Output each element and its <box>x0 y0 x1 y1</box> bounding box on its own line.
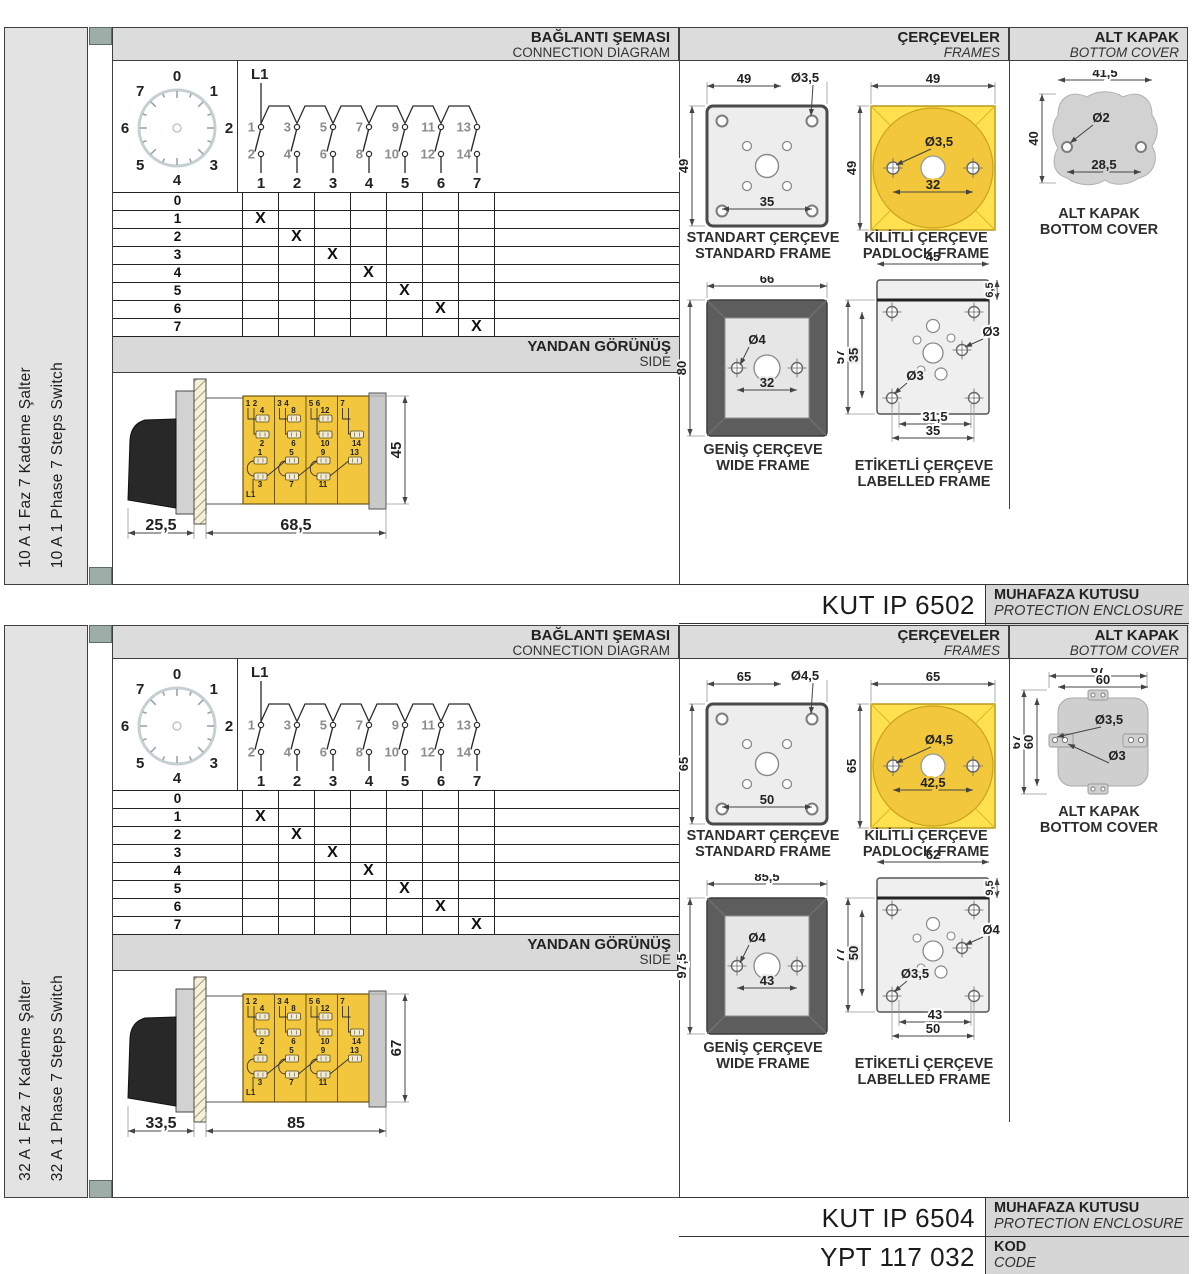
terminal-number: 10 <box>321 439 330 448</box>
dim-arrow <box>857 223 862 230</box>
terminal-number: 6 <box>291 1037 296 1046</box>
terminal-number: 12 <box>321 1004 330 1013</box>
contact-cell <box>459 791 495 809</box>
dim-text: 80 <box>677 361 689 375</box>
dim-arrow <box>899 1019 906 1024</box>
table-row: 0 <box>113 791 679 809</box>
terminal-number: 9 <box>321 448 326 457</box>
contact-cell <box>459 863 495 881</box>
contact-mark: X <box>243 809 279 827</box>
contact-mark: X <box>459 917 495 935</box>
padlock-frame-caption: KİLİTLİ ÇERÇEVE PADLOCK FRAME <box>843 230 1009 262</box>
side-view-header: YANDAN GÖRÜNÜŞ SIDE <box>113 337 679 373</box>
contact-cell <box>243 917 279 935</box>
table-row: 0 <box>113 193 679 211</box>
switch-blade <box>435 728 441 750</box>
frames-header-tr: ÇERÇEVELER <box>679 628 1000 644</box>
contact-cell <box>459 283 495 301</box>
contact-cell <box>423 211 459 229</box>
table-row: 7X <box>113 319 679 337</box>
table-row: 4X <box>113 265 679 283</box>
dim-arrow <box>877 261 884 266</box>
labelled-frame-drawing: 456,5Ø3Ø3573531,535 <box>837 252 1009 457</box>
frames-header-en: FRAMES <box>679 644 1000 658</box>
switch-handle <box>128 419 176 508</box>
labelled-frame-caption-en: LABELLED FRAME <box>839 474 1009 490</box>
bottom-cover-header-en: BOTTOM COVER <box>1009 644 1179 658</box>
contact-cell <box>387 827 423 845</box>
hole-callout: Ø3,5 <box>901 966 929 981</box>
terminal-number: 7 <box>340 399 345 408</box>
connection-diagram-header-tr: BAĞLANTI ŞEMASI <box>113 628 670 644</box>
section-main-panel: BAĞLANTI ŞEMASI CONNECTION DIAGRAM ÇERÇE… <box>112 27 1188 585</box>
contact-cell <box>279 283 315 301</box>
circuit-diagram-box: L112134256378491051112613147 <box>238 659 679 791</box>
dim-text: 35 <box>846 348 861 362</box>
bottom-cover-caption-en: BOTTOM COVER <box>1015 820 1183 836</box>
dim-arrow <box>967 435 974 440</box>
labelled-frame-caption-en: LABELLED FRAME <box>839 1072 1009 1088</box>
dim-text: 97,5 <box>677 953 689 978</box>
rotary-dial-box: 01234567 <box>113 659 238 791</box>
dial-position-label: 7 <box>136 83 144 100</box>
dim-arrow <box>206 530 213 535</box>
contact-cell <box>279 301 315 319</box>
dim-arrow <box>845 300 850 307</box>
terminal <box>254 1071 267 1078</box>
feed-label: L1 <box>251 66 269 83</box>
dim-arrow <box>899 421 906 426</box>
contact-cell <box>423 845 459 863</box>
contact-cell <box>387 809 423 827</box>
dim-arrow <box>707 881 714 886</box>
switch-number: 1 <box>257 773 265 790</box>
circuit-diagram: L112134256378491051112613147 <box>238 61 679 193</box>
bottom-cover-header-tr: ALT KAPAK <box>1009 628 1179 644</box>
dial-tick <box>163 158 165 162</box>
dim-text: 67 <box>388 1040 405 1057</box>
contact-node <box>474 722 479 727</box>
dim-text: 50 <box>760 792 774 807</box>
contact-number-bottom: 6 <box>320 147 327 162</box>
dim-text: 65 <box>737 669 751 684</box>
contact-number-bottom: 10 <box>385 745 399 760</box>
hole-callout: Ø4 <box>748 930 766 945</box>
terminal-number: 8 <box>291 406 296 415</box>
terminal <box>317 1071 330 1078</box>
contact-cell <box>351 247 387 265</box>
padlock-frame-caption-tr: KİLİTLİ ÇERÇEVE <box>843 828 1009 844</box>
tab-hole <box>1062 737 1067 742</box>
dim-arrow <box>379 530 386 535</box>
terminal-number: 11 <box>319 480 328 489</box>
contact-cell <box>279 319 315 337</box>
contact-node <box>474 124 479 129</box>
dim-text: 43 <box>760 973 774 988</box>
dim-text: 60 <box>1096 672 1110 687</box>
wide-frame-caption-tr: GENİŞ ÇERÇEVE <box>683 1040 843 1056</box>
dial-tick <box>151 747 156 752</box>
dial-position-label: 3 <box>210 157 218 174</box>
jumper-arc <box>333 106 369 124</box>
dim-arrow <box>892 1033 899 1038</box>
terminal-number: 4 <box>284 399 289 408</box>
terminal-number: 12 <box>321 406 330 415</box>
contact-cell <box>315 899 351 917</box>
bottom-cover-caption: ALT KAPAK BOTTOM COVER <box>1015 804 1183 836</box>
terminal-number: 8 <box>291 1004 296 1013</box>
contact-cell <box>315 265 351 283</box>
terminal-number: 2 <box>253 997 258 1006</box>
hole-callout: Ø3 <box>982 324 999 339</box>
mounting-plate <box>176 989 194 1112</box>
bottom-cover-drawing: 67606760Ø3,5Ø3 <box>1013 668 1183 805</box>
corner-marker-bottom <box>89 1180 112 1198</box>
bottom-cover-caption-tr: ALT KAPAK <box>1015 206 1183 222</box>
contact-cell <box>243 301 279 319</box>
dim-arrow <box>206 1128 213 1133</box>
position-label: 6 <box>113 301 243 319</box>
table-row: 3X <box>113 247 679 265</box>
rotary-dial: 01234567 <box>113 61 238 193</box>
contact-number-top: 11 <box>421 718 435 733</box>
contact-cell <box>459 899 495 917</box>
center-hole <box>923 343 943 363</box>
contact-cell <box>279 211 315 229</box>
terminal-number: 9 <box>321 1046 326 1055</box>
contact-cell <box>279 265 315 283</box>
dim-arrow <box>687 1027 692 1034</box>
standard-frame-caption: STANDART ÇERÇEVE STANDARD FRAME <box>683 828 843 860</box>
terminal-number: 3 <box>277 399 282 408</box>
dim-arrow <box>1034 779 1039 786</box>
dial-position-label: 2 <box>225 718 233 735</box>
dial-tick <box>207 114 211 116</box>
contact-number-bottom: 14 <box>457 147 472 162</box>
terminal-number: 2 <box>260 1037 265 1046</box>
dim-arrow <box>689 106 694 113</box>
standard-frame-caption-en: STANDARD FRAME <box>683 246 843 262</box>
bottom-cover-caption-tr: ALT KAPAK <box>1015 804 1183 820</box>
contact-node <box>330 749 335 754</box>
tab-hole <box>1101 787 1105 791</box>
jumper-arc <box>333 704 369 722</box>
small-hole <box>743 142 752 151</box>
contact-number-bottom: 4 <box>284 745 292 760</box>
contact-node <box>258 124 263 129</box>
contact-cell <box>243 265 279 283</box>
contact-cell <box>459 881 495 899</box>
dim-arrow <box>820 881 827 886</box>
terminal <box>319 415 332 422</box>
enclosure-label-tr: MUHAFAZA KUTUSU <box>994 587 1189 604</box>
side-view-header-en: SIDE <box>113 953 671 967</box>
contact-cell <box>279 845 315 863</box>
contact-node <box>402 124 407 129</box>
wide-frame-caption-en: WIDE FRAME <box>683 1056 843 1072</box>
contact-cell <box>243 881 279 899</box>
contact-mark: X <box>315 845 351 863</box>
standard-frame-caption-tr: STANDART ÇERÇEVE <box>683 828 843 844</box>
jumper-arc <box>261 106 297 124</box>
terminal-number: 7 <box>340 997 345 1006</box>
contact-number-top: 7 <box>356 718 363 733</box>
bottom-cover-drawing: 41,540Ø228,5 <box>1013 70 1183 207</box>
position-label: 2 <box>113 229 243 247</box>
padlock-frame: Ø3,5324949 <box>847 68 1009 236</box>
bottom-cover-header: ALT KAPAK BOTTOM COVER <box>1009 28 1187 61</box>
small-hole <box>947 932 955 940</box>
contact-number-top: 9 <box>392 120 399 135</box>
contact-number-top: 13 <box>457 120 471 135</box>
contact-cell <box>315 791 351 809</box>
contact-number-top: 9 <box>392 718 399 733</box>
contact-node <box>258 151 263 156</box>
section-main-panel: BAĞLANTI ŞEMASI CONNECTION DIAGRAM ÇERÇE… <box>112 625 1188 1198</box>
contact-number-top: 3 <box>284 120 291 135</box>
dim-text: 85,5 <box>754 874 779 884</box>
contact-node <box>474 749 479 754</box>
switch-blade <box>435 130 441 152</box>
terminal-number: 1 <box>246 997 251 1006</box>
dim-text: 32 <box>926 177 940 192</box>
dim-text: 66 <box>760 276 774 286</box>
table-row: 3X <box>113 845 679 863</box>
dim-text: 50 <box>846 946 861 960</box>
contact-cell <box>423 917 459 935</box>
dial-position-label: 6 <box>121 120 129 137</box>
wide-frame-caption: GENİŞ ÇERÇEVE WIDE FRAME <box>683 1040 843 1072</box>
dim-text: 28,5 <box>1091 157 1116 172</box>
enclosure-label-tr: MUHAFAZA KUTUSU <box>994 1200 1189 1217</box>
dim-arrow <box>859 910 864 917</box>
side-view-header-en: SIDE <box>113 355 671 369</box>
terminal-number: 7 <box>289 1078 294 1087</box>
contact-number-top: 7 <box>356 120 363 135</box>
dim-text: 35 <box>926 423 940 438</box>
dial-tick <box>163 94 165 98</box>
jumper-arc <box>261 704 297 722</box>
dial-position-label: 0 <box>173 68 181 85</box>
hole-callout: Ø3 <box>1108 748 1125 763</box>
code-label-en: CODE <box>994 1256 1189 1271</box>
frames-header-en: FRAMES <box>679 46 1000 60</box>
contact-cell <box>459 301 495 319</box>
contact-cell <box>279 863 315 881</box>
switch-number: 3 <box>329 175 337 192</box>
frames-column-divider <box>1009 626 1010 1122</box>
contact-number-bottom: 10 <box>385 147 399 162</box>
dim-arrow <box>707 283 714 288</box>
contact-cell <box>351 283 387 301</box>
terminal-number: 14 <box>352 439 361 448</box>
contact-cell <box>351 845 387 863</box>
dim-arrow <box>128 1128 135 1133</box>
frames-column-divider <box>1009 28 1010 509</box>
small-hole <box>927 918 940 931</box>
switch-number: 6 <box>437 773 445 790</box>
contact-node <box>438 124 443 129</box>
dim-arrow <box>687 898 692 905</box>
contact-cell <box>387 193 423 211</box>
hole-callout: Ø4 <box>748 332 766 347</box>
labelled-frame-caption: ETİKETLİ ÇERÇEVE LABELLED FRAME <box>839 1056 1009 1088</box>
contact-mark: X <box>351 863 387 881</box>
position-label: 6 <box>113 899 243 917</box>
standard-frame-caption-tr: STANDART ÇERÇEVE <box>683 230 843 246</box>
corner-marker-bottom <box>89 567 112 585</box>
contact-cell <box>387 863 423 881</box>
standard-frame-drawing: 65Ø4,56550 <box>677 666 837 839</box>
dim-arrow <box>689 704 694 711</box>
switching-table: 01X2X3X4X5X6X7X <box>113 193 679 337</box>
dim-arrow <box>128 530 135 535</box>
small-hole <box>927 320 940 333</box>
dial-position-label: 7 <box>136 681 144 698</box>
table-row: 7X <box>113 917 679 935</box>
labelled-frame-caption: ETİKETLİ ÇERÇEVE LABELLED FRAME <box>839 458 1009 490</box>
dim-arrow <box>774 83 781 88</box>
switch-number: 4 <box>365 773 374 790</box>
dial-tick <box>198 102 203 107</box>
dial-position-label: 4 <box>173 172 182 189</box>
side-view-header: YANDAN GÖRÜNÜŞ SIDE <box>113 935 679 971</box>
contact-number-bottom: 14 <box>457 745 472 760</box>
contact-cell <box>459 845 495 863</box>
terminal <box>254 457 267 464</box>
dial-circle <box>139 688 215 764</box>
corner-marker-top <box>89 27 112 45</box>
contact-number-bottom: 2 <box>248 147 255 162</box>
hole-callout: Ø2 <box>1092 110 1109 125</box>
dim-text: 65 <box>926 669 940 684</box>
contact-cell <box>387 845 423 863</box>
dim-arrow <box>1021 690 1026 697</box>
terminal-number: 7 <box>289 480 294 489</box>
labelled-frame-caption-tr: ETİKETLİ ÇERÇEVE <box>839 458 1009 474</box>
switch-blade <box>291 728 297 750</box>
terminal-number: 3 <box>258 1078 263 1087</box>
contact-cell <box>387 899 423 917</box>
dial-position-label: 6 <box>121 718 129 735</box>
dial-tick <box>198 700 203 705</box>
contact-cell <box>423 319 459 337</box>
rotary-dial-box: 01234567 <box>113 61 238 193</box>
contact-mark: X <box>279 229 315 247</box>
dial-center <box>173 124 181 132</box>
product-sidebar: 10 A 1 Faz 7 Kademe Şalter 10 A 1 Phase … <box>4 27 88 585</box>
switch-blade <box>291 130 297 152</box>
labelled-frame: 629,5Ø4Ø3,577504350 <box>837 850 1009 1050</box>
end-cap <box>369 393 386 509</box>
contact-cell <box>243 247 279 265</box>
hole-callout: Ø3,5 <box>925 134 953 149</box>
contact-number-bottom: 8 <box>356 745 363 760</box>
contact-cell <box>423 193 459 211</box>
contact-mark: X <box>387 283 423 301</box>
padlock-frame-drawing: Ø4,542,56565 <box>847 666 1009 839</box>
contact-cell <box>423 283 459 301</box>
dial-tick <box>151 149 156 154</box>
mount-hole <box>1136 142 1146 152</box>
dial-position-label: 4 <box>173 770 182 787</box>
contact-cell <box>423 247 459 265</box>
enclosure-code-row: KUT IP 6502 MUHAFAZA KUTUSU PROTECTION E… <box>679 584 1189 623</box>
order-code-row: YPT 117 032 KOD CODE <box>679 1236 1189 1274</box>
small-hole <box>913 934 921 942</box>
switching-table: 01X2X3X4X5X6X7X <box>113 791 679 935</box>
wide-frame-drawing: Ø4326680 <box>677 276 837 447</box>
terminal-number: 5 <box>309 997 314 1006</box>
dim-arrow <box>845 407 850 414</box>
mount-hole <box>807 714 818 725</box>
dial-tick <box>143 712 147 714</box>
position-label: 3 <box>113 247 243 265</box>
small-hole <box>935 368 947 380</box>
contact-node <box>366 151 371 156</box>
table-row: 5X <box>113 881 679 899</box>
contact-node <box>366 722 371 727</box>
position-label: 2 <box>113 827 243 845</box>
dim-arrow <box>1140 673 1147 678</box>
padlock-frame: Ø4,542,56565 <box>847 666 1009 834</box>
terminal <box>319 431 332 438</box>
tab-hole <box>1101 693 1105 697</box>
small-hole <box>783 740 792 749</box>
terminal <box>351 1029 364 1036</box>
frames-header: ÇERÇEVELER FRAMES <box>679 28 1009 61</box>
order-code-value: YPT 117 032 <box>679 1237 986 1274</box>
wide-frame-caption-en: WIDE FRAME <box>683 458 843 474</box>
contact-cell <box>243 319 279 337</box>
contact-cell <box>387 301 423 319</box>
terminal-number: 3 <box>258 480 263 489</box>
dim-arrow <box>402 497 407 504</box>
contact-cell <box>315 863 351 881</box>
connection-diagram-header: BAĞLANTI ŞEMASI CONNECTION DIAGRAM <box>113 28 679 61</box>
product-title-tr: 32 A 1 Faz 7 Kademe Şalter <box>17 980 35 1181</box>
contact-cell <box>315 193 351 211</box>
switch-number: 6 <box>437 175 445 192</box>
position-label: 1 <box>113 809 243 827</box>
contact-cell <box>459 827 495 845</box>
small-hole <box>743 740 752 749</box>
terminal-number: 6 <box>291 439 296 448</box>
bottom-cover-caption: ALT KAPAK BOTTOM COVER <box>1015 206 1183 238</box>
contact-cell <box>387 319 423 337</box>
labelled-frame: 456,5Ø3Ø3573531,535 <box>837 252 1009 452</box>
dial-tick <box>143 739 147 741</box>
wide-frame-drawing: Ø44385,597,5 <box>677 874 837 1045</box>
contact-number-bottom: 8 <box>356 147 363 162</box>
dim-arrow <box>1145 77 1152 82</box>
dim-arrow <box>871 681 878 686</box>
contact-node <box>438 722 443 727</box>
dim-arrow <box>1049 673 1056 678</box>
hole-callout: Ø4,5 <box>925 732 953 747</box>
dim-arrow <box>187 1128 194 1133</box>
dial-tick <box>190 158 192 162</box>
dim-arrow <box>988 83 995 88</box>
dim-text: 41,5 <box>1092 70 1117 80</box>
dim-arrow <box>857 106 862 113</box>
dial-tick <box>143 114 147 116</box>
product-section: 10 A 1 Faz 7 Kademe Şalter 10 A 1 Phase … <box>0 27 1200 585</box>
hole-callout: Ø3 <box>906 368 923 383</box>
small-hole <box>935 966 947 978</box>
position-label: 5 <box>113 881 243 899</box>
shaft <box>206 996 243 1102</box>
